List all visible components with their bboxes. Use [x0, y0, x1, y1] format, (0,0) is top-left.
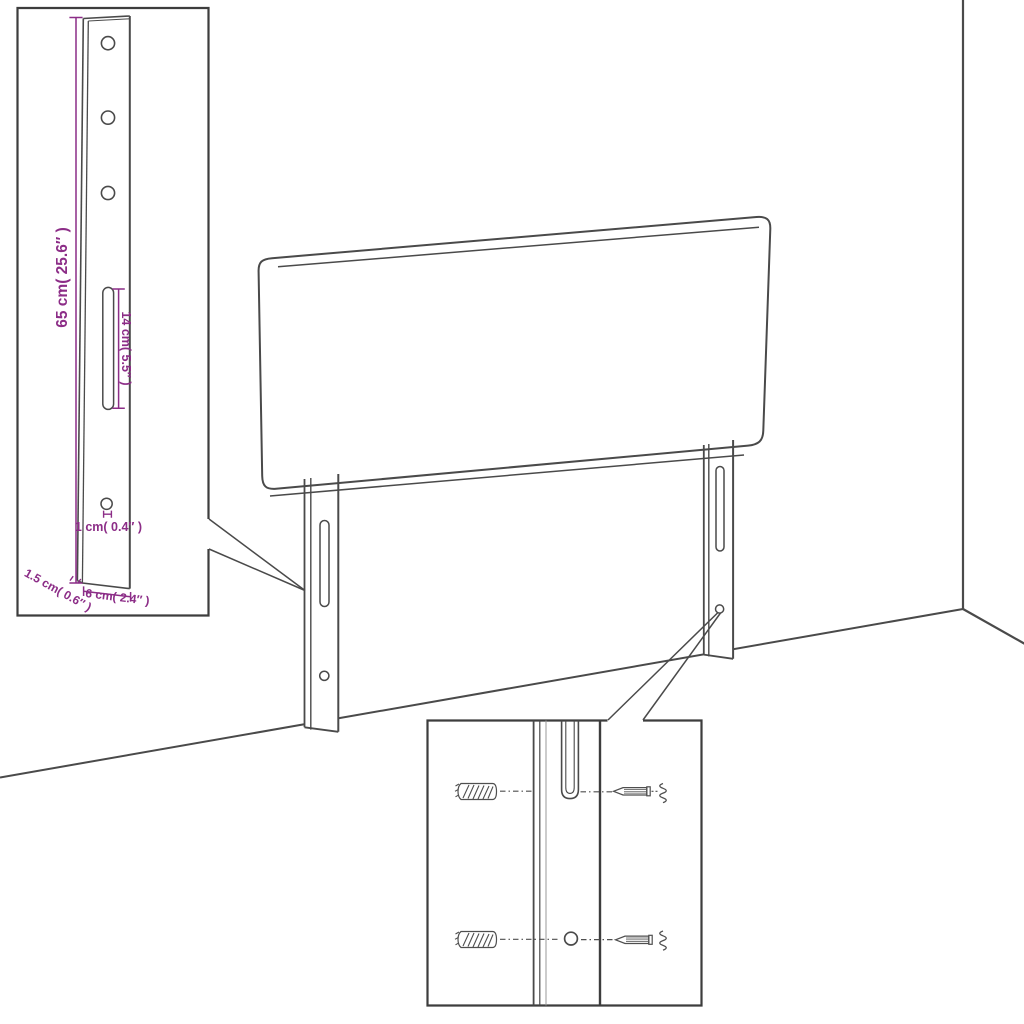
- height-dimension-label: 65 cm( 25.6″ ): [54, 227, 71, 327]
- headboard-roll-edge: [278, 227, 759, 267]
- leg-detail-inset: 65 cm( 25.6″ ) 14 cm( 5.5″ ) 1 cm( 0.4″ …: [22, 16, 150, 614]
- left-leg: [305, 474, 339, 732]
- strip-hole: [565, 932, 578, 945]
- wall-break-symbol-bottom: [660, 931, 667, 950]
- dimension-labels: 65 cm( 25.6″ ) 14 cm( 5.5″ ) 1 cm( 0.4″ …: [22, 227, 150, 614]
- hole-dimension-line: [104, 511, 112, 518]
- hardware-inset-box: [428, 721, 702, 1006]
- right-leg: [704, 440, 734, 659]
- headboard-panel: [259, 217, 771, 496]
- wall-plug-bottom: [455, 932, 497, 948]
- room-backdrop: [0, 0, 1024, 778]
- slot-dimension-label: 14 cm( 5.5″ ): [119, 311, 133, 385]
- wall-plug-top: [455, 784, 497, 800]
- hardware-inset: [455, 721, 666, 1006]
- diagram-canvas: 65 cm( 25.6″ ) 14 cm( 5.5″ ) 1 cm( 0.4″ …: [0, 0, 1024, 1024]
- headboard-outline: [259, 217, 771, 489]
- inset-slot: [103, 287, 114, 409]
- headboard-bottom-edge: [270, 455, 744, 496]
- inset-hole-middle: [101, 111, 114, 124]
- screw-top: [614, 787, 651, 796]
- floor-line-right: [963, 609, 1024, 644]
- inset-hole-top: [101, 37, 114, 50]
- callout-wedge-left-leg: [209, 519, 305, 591]
- floor-line-left: [0, 609, 963, 778]
- inset-small-hole: [101, 498, 112, 509]
- inset-hole-lower: [101, 186, 114, 199]
- strip-slot-inner: [566, 721, 574, 794]
- hole-dimension-label: 1 cm( 0.4″ ): [75, 520, 142, 534]
- inset-leg-strip: [534, 721, 600, 1006]
- left-leg-face: [305, 474, 339, 732]
- width-dimension-label: 6 cm( 2.4″ ): [85, 586, 151, 608]
- headboard-diagram: 65 cm( 25.6″ ) 14 cm( 5.5″ ) 1 cm( 0.4″ …: [0, 0, 1024, 1024]
- screw-bottom: [616, 935, 653, 944]
- wall-break-symbol-top: [660, 784, 667, 803]
- strip-slot-outer: [562, 721, 579, 799]
- inset-leg-drawing: [77, 16, 129, 589]
